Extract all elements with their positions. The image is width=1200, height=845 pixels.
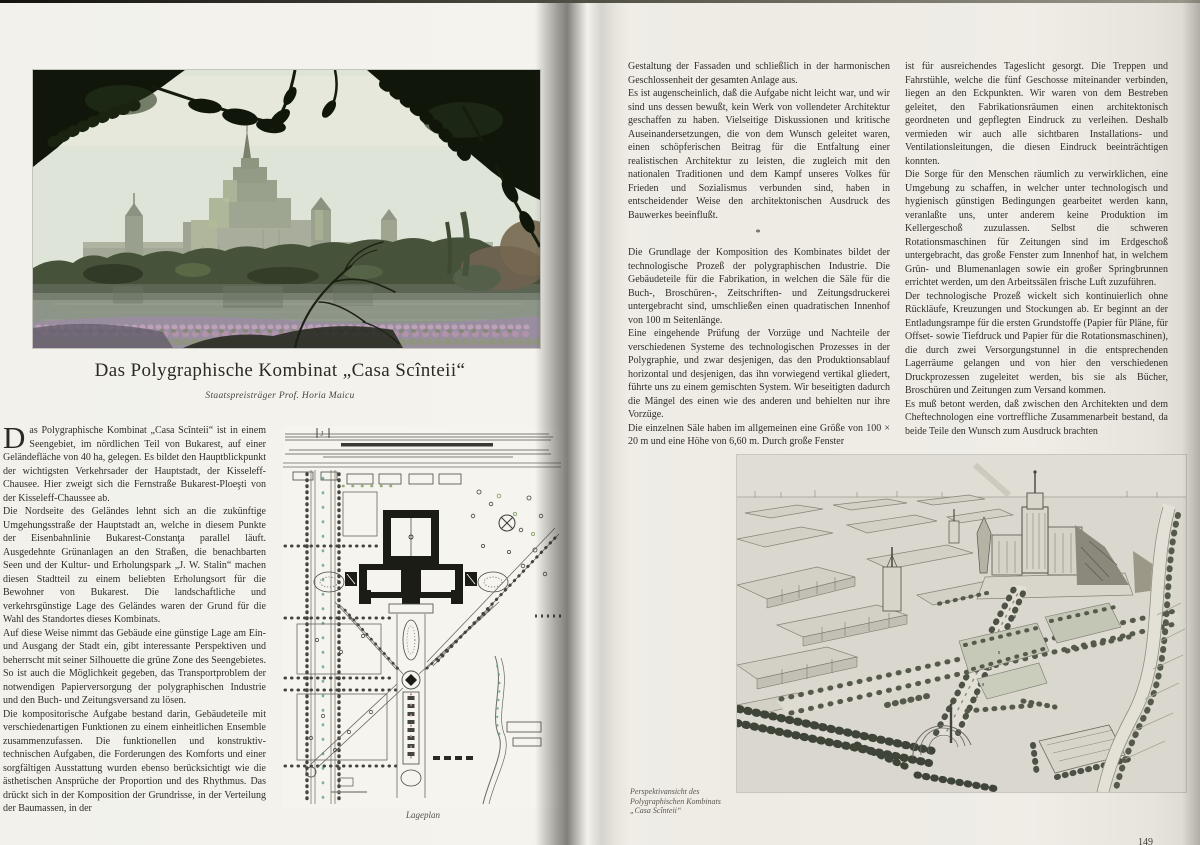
perspective-illustration (737, 455, 1186, 792)
plan-mark-label: J (321, 430, 324, 438)
article-subtitle: Staatspreisträger Prof. Horia Maicu (0, 391, 560, 401)
book-spread: Das Polygraphische Kombinat „Casa Scînte… (0, 0, 1200, 845)
paragraph: Die Nordseite des Geländes lehnt sich an… (3, 505, 266, 627)
photo-casa-scinteii (33, 70, 540, 348)
paragraph: Auf diese Weise nimmt das Gebäude eine g… (3, 627, 266, 708)
paragraph: Gestaltung der Fassaden und schließlich … (628, 60, 890, 87)
paragraph: Die Grundlage der Komposition des Kombin… (628, 246, 890, 327)
perspective-caption: Perspektivansicht des Polygraphischen Ko… (630, 787, 760, 816)
paragraph: Die kompositorische Aufgabe bestand dari… (3, 708, 266, 816)
site-plan-drawing: J (283, 426, 563, 808)
paragraph: Es ist augenscheinlich, daß die Aufgabe … (628, 87, 890, 222)
photo-illustration (33, 70, 540, 348)
paragraph: Der technologische Prozeß wickelt sich k… (905, 290, 1168, 398)
paragraph: Die einzelnen Säle haben im allgemeinen … (628, 422, 890, 449)
page-number: 149 (1138, 837, 1153, 845)
scan-top-edge (0, 0, 1200, 3)
paragraph: Eine eingehende Prüfung der Vorzüge und … (628, 327, 890, 422)
right-column-2: ist für ausreichendes Tageslicht gesorgt… (905, 60, 1168, 438)
perspective-drawing (737, 455, 1186, 792)
site-plan: J (283, 426, 563, 808)
paragraph: ist für ausreichendes Tageslicht gesorgt… (905, 60, 1168, 168)
article-title: Das Polygraphische Kombinat „Casa Scînte… (0, 360, 560, 382)
paragraph: Das Polygraphische Kombinat „Casa Scînte… (3, 424, 266, 505)
paragraph: Die Sorge für den Menschen räumlich zu v… (905, 168, 1168, 290)
drop-cap: D (3, 424, 29, 450)
section-separator: * (628, 222, 890, 246)
right-column-1: Gestaltung der Fassaden und schließlich … (628, 60, 890, 449)
site-plan-caption: Lageplan (283, 810, 563, 820)
paragraph: Es muß betont werden, daß zwischen den A… (905, 398, 1168, 439)
left-column-text: Das Polygraphische Kombinat „Casa Scînte… (3, 424, 266, 816)
